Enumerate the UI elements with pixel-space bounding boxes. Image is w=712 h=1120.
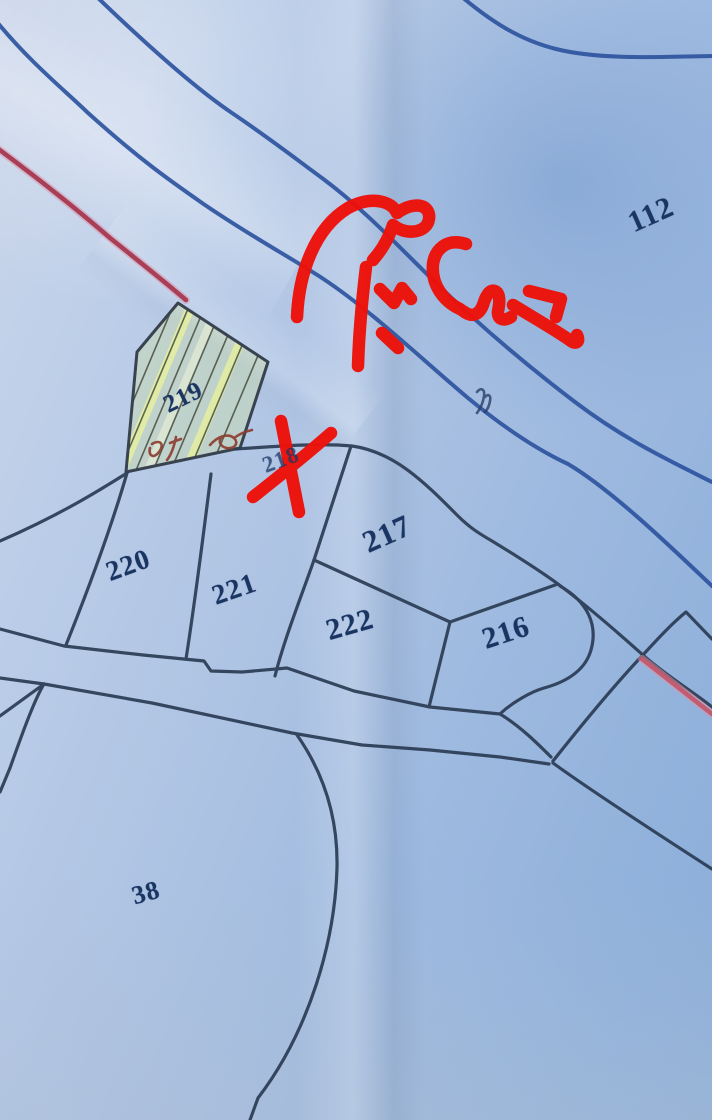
scribble-zigzag <box>380 288 411 303</box>
scribble-diagonal <box>513 305 578 343</box>
scribble-wave <box>463 291 511 320</box>
road-lines <box>0 0 712 586</box>
divider-218-217 <box>314 446 351 560</box>
scribble-c-curve <box>433 242 466 309</box>
road-line-top-right <box>462 0 712 57</box>
boundary-216-rounded-corner <box>501 586 593 713</box>
boundary-38-right <box>250 735 337 1120</box>
red-marker-annotations <box>253 201 578 512</box>
boundary-junction-upright <box>553 612 712 761</box>
bottom-right-roadside-line <box>642 659 712 714</box>
divider-222-216 <box>429 622 450 707</box>
parcel-boundaries <box>0 445 712 1120</box>
lane-lower-line <box>0 678 549 764</box>
boundary-junction-downright <box>553 763 712 869</box>
lane-upper-line <box>0 629 551 757</box>
scribble-vertical <box>358 267 366 366</box>
map-photo: 11221921821722022122221638 <box>0 0 712 1120</box>
divider-220-221 <box>186 474 211 659</box>
divider-221-222 <box>275 560 314 676</box>
